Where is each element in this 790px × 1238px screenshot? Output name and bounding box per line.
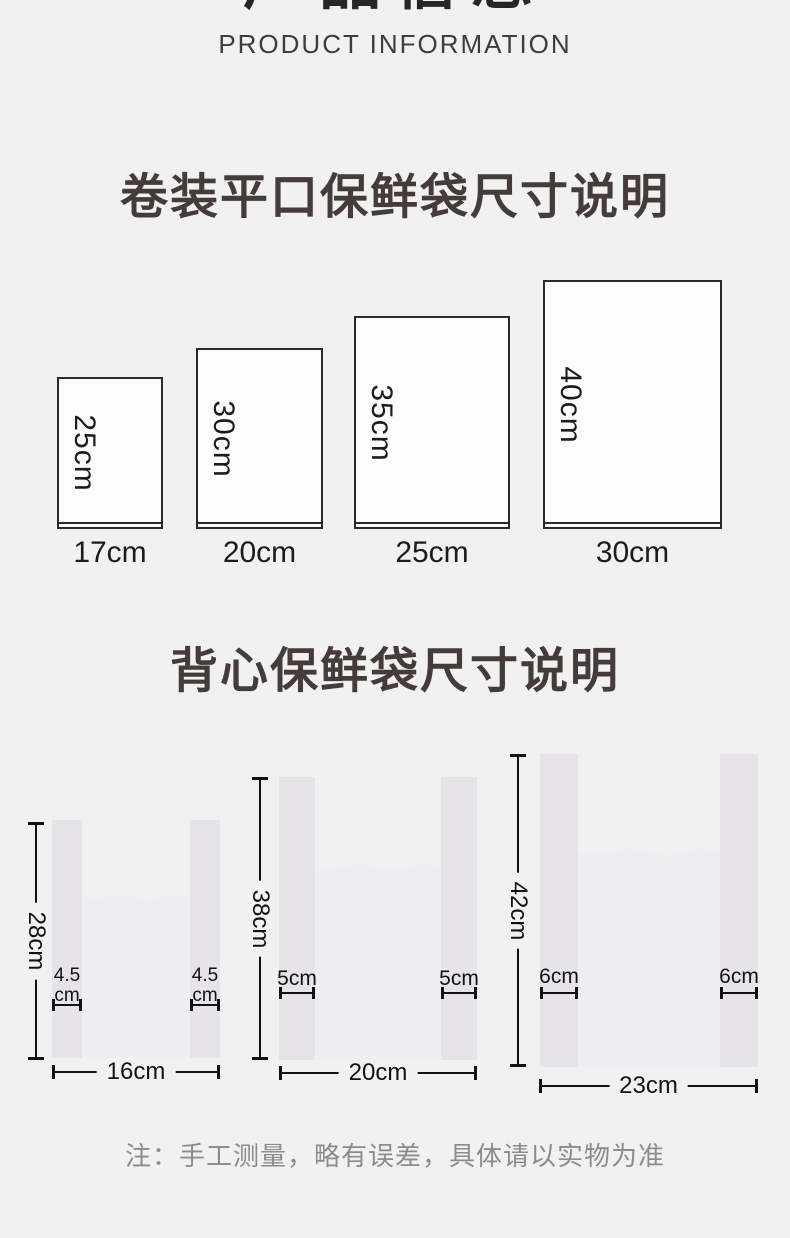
dimension-tick <box>474 987 477 999</box>
vest-bag-2-width-dimension: 20cm <box>279 1066 477 1080</box>
flat-bag-2-width-label: 20cm <box>196 536 323 570</box>
product-information-page: 产品信息 PRODUCT INFORMATION 卷装平口保鲜袋尺寸说明 25c… <box>0 0 790 1238</box>
dimension-tick <box>441 987 444 999</box>
measurement-note: 注：手工测量，略有误差，具体请以实物为准 <box>0 1136 790 1173</box>
vest-bag-1-left-handle <box>52 820 82 1058</box>
dimension-tick <box>720 987 723 999</box>
vest-bag-3-right-handle-dimension <box>720 987 758 999</box>
dimension-tick <box>217 1065 220 1079</box>
flat-bag-3-height-label: 35cm <box>364 384 398 461</box>
vest-bag-3-width-dimension: 23cm <box>539 1079 758 1093</box>
page-title-cropped: 产品信息 <box>0 0 790 16</box>
dimension-tick <box>252 1057 268 1060</box>
vest-bag-1-width-label: 16cm <box>97 1059 176 1085</box>
dimension-tick <box>539 1079 542 1093</box>
vest-bag-2-left-handle-dimension <box>279 987 315 999</box>
dimension-tick <box>279 1066 282 1080</box>
flat-bag-1-height-label: 25cm <box>67 414 101 491</box>
dimension-tick <box>575 987 578 999</box>
flat-bag-2-height-label: 30cm <box>206 400 240 477</box>
flat-bag-2-seal-line <box>198 522 321 524</box>
flat-bag-3-width-label: 25cm <box>354 536 510 570</box>
vest-bag-1-right-handle-dimension <box>190 999 220 1011</box>
flat-bag-1-seal-line <box>59 522 161 524</box>
vest-bag-2-right-handle <box>441 777 477 1060</box>
page-subtitle: PRODUCT INFORMATION <box>0 30 790 58</box>
dimension-tick <box>52 999 55 1011</box>
flat-bag-diagram-2: 30cm <box>196 348 323 529</box>
dimension-tick <box>252 777 268 780</box>
dimension-tick <box>28 1057 44 1060</box>
vest-bag-1-right-handle <box>190 820 220 1058</box>
vest-bag-3-left-handle-label: 6cm <box>534 966 584 988</box>
dimension-tick <box>217 999 220 1011</box>
dimension-tick <box>190 999 193 1011</box>
vest-bag-2-left-handle <box>279 777 315 1060</box>
vest-bag-3-right-handle-label: 6cm <box>714 966 764 988</box>
flat-bag-4-height-label: 40cm <box>553 366 587 443</box>
dimension-tick <box>510 1064 526 1067</box>
vest-bag-diagram-3 <box>540 754 758 1067</box>
vest-bag-2-right-handle-dimension <box>441 987 477 999</box>
vest-bag-2-width-label: 20cm <box>339 1060 418 1086</box>
dimension-tick <box>510 754 526 757</box>
vest-section-title: 背心保鲜袋尺寸说明 <box>0 642 790 702</box>
flat-bag-3-seal-line <box>356 522 508 524</box>
vest-bag-2-height-dimension: 38cm <box>252 777 268 1060</box>
vest-bag-diagram-2 <box>279 777 477 1060</box>
vest-bag-1-width-dimension: 16cm <box>52 1065 220 1079</box>
vest-bag-diagram-1 <box>52 820 220 1058</box>
flat-bag-diagram-4: 40cm <box>543 280 722 529</box>
vest-bag-3-height-label: 42cm <box>503 872 533 949</box>
dimension-tick <box>28 822 44 825</box>
dimension-tick <box>79 999 82 1011</box>
dimension-tick <box>312 987 315 999</box>
dimension-tick <box>755 1079 758 1093</box>
dimension-tick <box>755 987 758 999</box>
vest-bag-3-width-label: 23cm <box>609 1073 688 1099</box>
flat-bag-diagram-3: 35cm <box>354 316 510 529</box>
vest-bag-3-left-handle-dimension <box>540 987 578 999</box>
dimension-tick <box>474 1066 477 1080</box>
vest-bag-3-left-handle <box>540 754 578 1067</box>
flat-bag-diagram-1: 25cm <box>57 377 163 529</box>
vest-bag-3-height-dimension: 42cm <box>510 754 526 1067</box>
flat-bag-4-seal-line <box>545 522 720 524</box>
dimension-tick <box>279 987 282 999</box>
flat-bag-1-width-label: 17cm <box>57 536 163 570</box>
flat-section-title: 卷装平口保鲜袋尺寸说明 <box>0 168 790 228</box>
vest-bag-1-height-dimension: 28cm <box>28 822 44 1060</box>
flat-bag-4-width-label: 30cm <box>543 536 722 570</box>
vest-bag-1-left-handle-dimension <box>52 999 82 1011</box>
dimension-tick <box>52 1065 55 1079</box>
vest-bag-3-right-handle <box>720 754 758 1067</box>
vest-bag-2-height-label: 38cm <box>245 880 275 957</box>
dimension-tick <box>540 987 543 999</box>
